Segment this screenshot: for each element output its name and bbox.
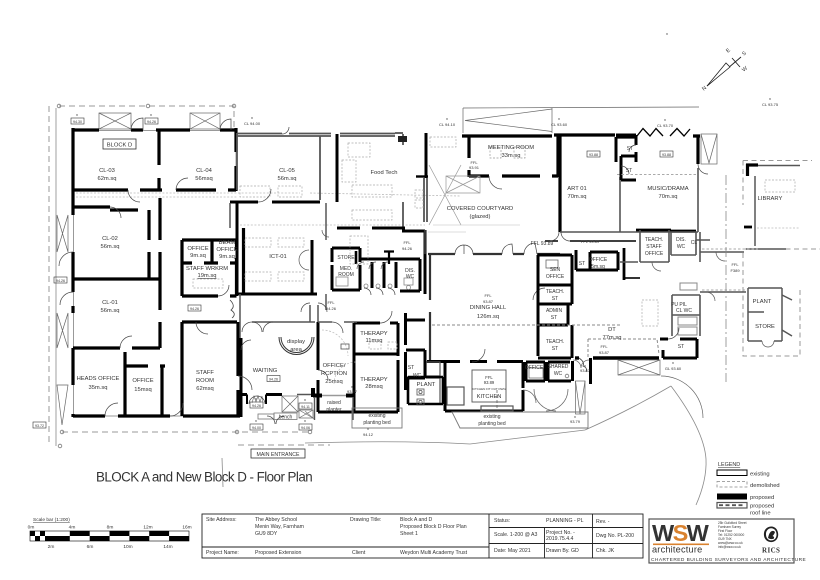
svg-text:x: x [304,418,306,423]
svg-text:MAIN ENTRANCE: MAIN ENTRANCE [257,452,300,458]
svg-text:HEADS OFFICE: HEADS OFFICE [77,376,120,382]
svg-text:STORE: STORE [755,324,775,330]
svg-text:MEETING ROOM: MEETING ROOM [488,145,534,151]
svg-text:F389: F389 [730,268,740,273]
svg-text:56m.sq: 56m.sq [277,176,296,182]
svg-text:94.26: 94.26 [190,307,199,311]
svg-text:Drawn By. GD: Drawn By. GD [546,548,579,554]
svg-text:28msq: 28msq [365,384,382,390]
svg-text:CL-02: CL-02 [102,236,118,242]
svg-text:6m: 6m [87,544,94,550]
svg-text:94.12: 94.12 [363,432,374,437]
svg-text:COVERED COURTYARD: COVERED COURTYARD [447,206,513,212]
svg-text:STAFF: STAFF [646,244,661,250]
svg-text:CL-03: CL-03 [99,168,115,174]
svg-text:94.26: 94.26 [147,120,156,124]
svg-text:4m: 4m [69,525,76,531]
svg-text:FFL 93.89: FFL 93.89 [581,239,600,244]
svg-text:2m: 2m [48,544,55,550]
svg-text:FFL 93.89: FFL 93.89 [531,241,554,247]
svg-text:CHARTERED BUILDING SURVEYORS A: CHARTERED BUILDING SURVEYORS AND ARCHITE… [651,557,806,563]
svg-text:x: x [150,112,152,117]
svg-text:Dwg No. PL-200: Dwg No. PL-200 [596,533,634,539]
svg-text:BLOCK A and New Block D - Floo: BLOCK A and New Block D - Floor Plan [96,470,312,485]
svg-text:ST: ST [678,344,684,350]
svg-text:33m.sq: 33m.sq [501,153,520,159]
svg-text:Proposed Block D Floor Plan: Proposed Block D Floor Plan [400,524,467,530]
svg-text:existing: existing [369,413,386,419]
svg-text:KITCHEN FIT OUT DWG: KITCHEN FIT OUT DWG [472,387,506,391]
svg-text:OFFICE: OFFICE [589,257,608,263]
svg-text:CL 93.75: CL 93.75 [762,102,779,107]
svg-text:94.26: 94.26 [269,378,278,382]
svg-text:RCPTION: RCPTION [321,371,347,377]
svg-text:planting bed: planting bed [478,421,505,427]
svg-text:2019.75.4.4: 2019.75.4.4 [546,536,574,542]
svg-text:display: display [287,339,305,345]
svg-text:OFFICE: OFFICE [216,247,237,253]
svg-text:11msq: 11msq [366,338,383,344]
svg-text:93.87: 93.87 [483,299,494,304]
svg-text:ST: ST [551,315,557,321]
svg-text:WC: WC [677,244,686,250]
svg-text:x: x [76,112,78,117]
svg-text:THERAPY: THERAPY [360,377,388,383]
svg-text:FFL: FFL [327,300,335,305]
svg-text:existing: existing [484,414,501,420]
svg-text:126m.sq: 126m.sq [477,314,499,320]
svg-text:CL 94.10: CL 94.10 [439,122,456,127]
svg-text:roof line: roof line [750,511,771,517]
svg-text:Rev. -: Rev. - [596,519,610,525]
svg-text:77m.sq: 77m.sq [602,335,621,341]
svg-text:CL 93.70: CL 93.70 [657,123,674,128]
svg-text:56m.sq: 56m.sq [100,244,119,250]
svg-text:93.87: 93.87 [580,368,591,373]
svg-text:93.91: 93.91 [469,165,480,170]
svg-text:TEACH.: TEACH. [546,289,564,295]
svg-text:Date: May 2021: Date: May 2021 [494,548,531,554]
svg-text:9m.sq: 9m.sq [190,253,206,259]
svg-text:93.87: 93.87 [347,389,358,394]
svg-text:STAFF WRKRM: STAFF WRKRM [186,266,228,272]
svg-text:x: x [304,397,306,402]
svg-text:BLOCK D: BLOCK D [107,143,132,149]
svg-text:Project Name:: Project Name: [206,550,239,556]
svg-text:PLANNING - PL: PLANNING - PL [546,518,584,524]
svg-text:x: x [664,117,666,122]
svg-text:ST: ST [552,346,558,352]
svg-text:ST: ST [552,296,558,302]
svg-text:KITCHEN: KITCHEN [477,394,502,400]
svg-text:94.06: 94.06 [301,426,310,430]
svg-text:94.26: 94.26 [56,279,65,283]
svg-text:93.88: 93.88 [589,153,598,157]
svg-text:SHARED: SHARED [548,364,569,370]
svg-text:THERAPY: THERAPY [360,331,388,337]
svg-text:70m.sq: 70m.sq [658,194,677,200]
svg-text:94.26: 94.26 [252,404,261,408]
svg-text:area: area [290,347,302,353]
svg-text:PLANT: PLANT [417,382,436,388]
svg-text:Drawing Title:: Drawing Title: [350,517,381,523]
svg-text:(glazed): (glazed) [470,214,491,220]
svg-text:info@wsw.co.uk: info@wsw.co.uk [718,545,741,549]
svg-text:35m.sq: 35m.sq [88,385,107,391]
svg-text:OFFICE: OFFICE [187,246,208,252]
svg-text:8m: 8m [107,525,114,531]
svg-text:WAITING: WAITING [253,368,278,374]
svg-text:WC: WC [406,274,415,280]
svg-text:PLANT: PLANT [753,299,772,305]
svg-text:CL 93.60: CL 93.60 [551,122,568,127]
svg-text:x: x [446,116,448,121]
svg-text:The Abbey School: The Abbey School [255,517,297,523]
svg-text:raised: raised [327,400,341,406]
svg-text:0m: 0m [28,525,35,531]
svg-text:ROOM: ROOM [196,378,214,384]
svg-text:WC: WC [413,373,422,379]
svg-text:SEN: SEN [550,267,561,273]
svg-text:Status:: Status: [494,518,510,524]
svg-text:94.26: 94.26 [402,246,413,251]
svg-text:x: x [255,418,257,423]
svg-text:Chk. JK: Chk. JK [596,548,615,554]
svg-text:GL 93.60: GL 93.60 [665,366,682,371]
svg-text:x: x [666,31,668,36]
svg-text:bench: bench [279,415,293,421]
svg-text:9m.sq: 9m.sq [219,254,235,260]
svg-text:Proposed Extension: Proposed Extension [255,550,302,556]
svg-text:56m.sq: 56m.sq [100,308,119,314]
svg-text:GU9 8DY: GU9 8DY [255,531,278,537]
svg-text:62m.sq: 62m.sq [97,176,116,182]
svg-text:TEACH.: TEACH. [546,339,564,345]
svg-text:BEAM: BEAM [219,240,236,246]
svg-text:14m: 14m [163,544,172,550]
svg-text:94.00: 94.00 [252,426,261,430]
svg-text:DINING HALL: DINING HALL [470,305,507,311]
svg-text:Food Tech: Food Tech [371,170,398,176]
svg-text:MUSIC/DRAMA: MUSIC/DRAMA [647,186,688,192]
svg-text:Site Address:: Site Address: [206,517,237,523]
svg-text:93.89: 93.89 [484,380,495,385]
svg-text:proposed: proposed [750,504,774,510]
svg-text:LIBRARY: LIBRARY [758,196,783,202]
svg-text:demolished: demolished [750,483,780,489]
svg-text:x: x [769,96,771,101]
svg-text:DIS.: DIS. [676,237,686,243]
svg-text:architecture: architecture [652,545,702,555]
svg-text:x: x [558,116,560,121]
svg-text:CL WC: CL WC [676,308,692,314]
svg-text:Block A and D: Block A and D [400,517,433,523]
svg-text:10m: 10m [123,544,132,550]
svg-text:x: x [367,426,369,431]
svg-text:16m: 16m [182,525,191,531]
svg-text:OFFICE: OFFICE [546,274,565,280]
svg-text:Menin Way, Farnham: Menin Way, Farnham [255,524,304,530]
svg-text:STAFF: STAFF [196,370,214,376]
svg-text:proposed: proposed [750,495,774,501]
svg-text:Sheet 1: Sheet 1 [400,531,418,537]
svg-text:93.79: 93.79 [570,419,581,424]
svg-text:OFFICE: OFFICE [645,251,664,257]
svg-text:ICT-01: ICT-01 [269,254,286,260]
svg-text:CL: CL [691,240,698,246]
svg-text:93.88: 93.88 [662,153,671,157]
svg-text:93.72: 93.72 [35,424,44,428]
svg-text:ART 01: ART 01 [567,186,586,192]
svg-text:CL-05: CL-05 [279,168,295,174]
svg-text:FFL: FFL [731,262,739,267]
svg-text:12m: 12m [143,525,152,531]
svg-text:RICS: RICS [762,547,780,555]
svg-text:FFL: FFL [403,240,411,245]
svg-text:FFL: FFL [484,293,492,298]
svg-text:ST: ST [579,261,585,267]
svg-text:ROOM: ROOM [338,272,354,278]
svg-text:5m.sq: 5m.sq [591,264,605,270]
svg-text:CL 94.00: CL 94.00 [244,121,261,126]
svg-text:OFFICE: OFFICE [132,378,153,384]
svg-text:FFL: FFL [600,344,608,349]
svg-text:19m.sq: 19m.sq [197,273,216,279]
svg-text:CL-01: CL-01 [102,300,118,306]
svg-text:94.26: 94.26 [326,306,337,311]
svg-text:x: x [251,115,253,120]
svg-text:62msq: 62msq [196,386,213,392]
svg-text:94.11: 94.11 [301,405,310,409]
svg-text:CL-04: CL-04 [196,168,213,174]
svg-text:OFFICE: OFFICE [525,365,544,371]
svg-text:Weydon Multi Academy Trust: Weydon Multi Academy Trust [400,550,468,556]
svg-text:DT: DT [608,327,616,333]
svg-text:TEACH.: TEACH. [645,237,663,243]
svg-text:STORE: STORE [337,255,355,261]
svg-text:planter: planter [326,407,342,413]
svg-text:OFFICE/: OFFICE/ [323,363,346,369]
svg-text:LEGEND: LEGEND [718,462,740,468]
svg-text:15msq: 15msq [134,387,151,393]
svg-text:ADMIN: ADMIN [546,308,563,314]
svg-text:70m.sq: 70m.sq [567,194,586,200]
svg-text:94.30: 94.30 [73,120,82,124]
svg-text:93.87: 93.87 [599,350,610,355]
svg-text:WC: WC [554,371,563,377]
svg-text:56msq: 56msq [195,176,212,182]
svg-text:ST: ST [408,365,414,371]
svg-text:Scale. 1-200 @ A3: Scale. 1-200 @ A3 [494,532,537,538]
svg-text:Client: Client [352,550,366,556]
svg-text:existing: existing [750,472,770,478]
svg-text:Scale bar (1:200): Scale bar (1:200) [33,517,70,523]
svg-text:WSW: WSW [652,520,710,546]
svg-text:x: x [672,360,674,365]
